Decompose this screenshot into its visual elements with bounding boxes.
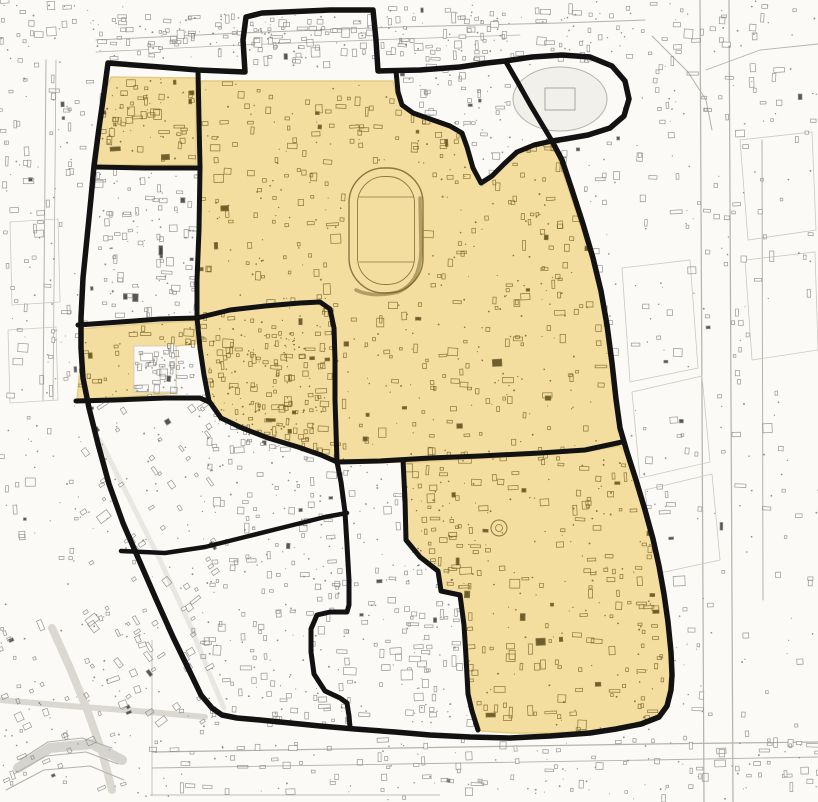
zone-northwest-block bbox=[97, 77, 196, 165]
boundary-upperleft-block-top bbox=[94, 167, 200, 168]
parcel-map-canvas bbox=[0, 0, 818, 802]
campus-parcel-map bbox=[0, 0, 818, 802]
track-outer-ring bbox=[349, 168, 423, 293]
